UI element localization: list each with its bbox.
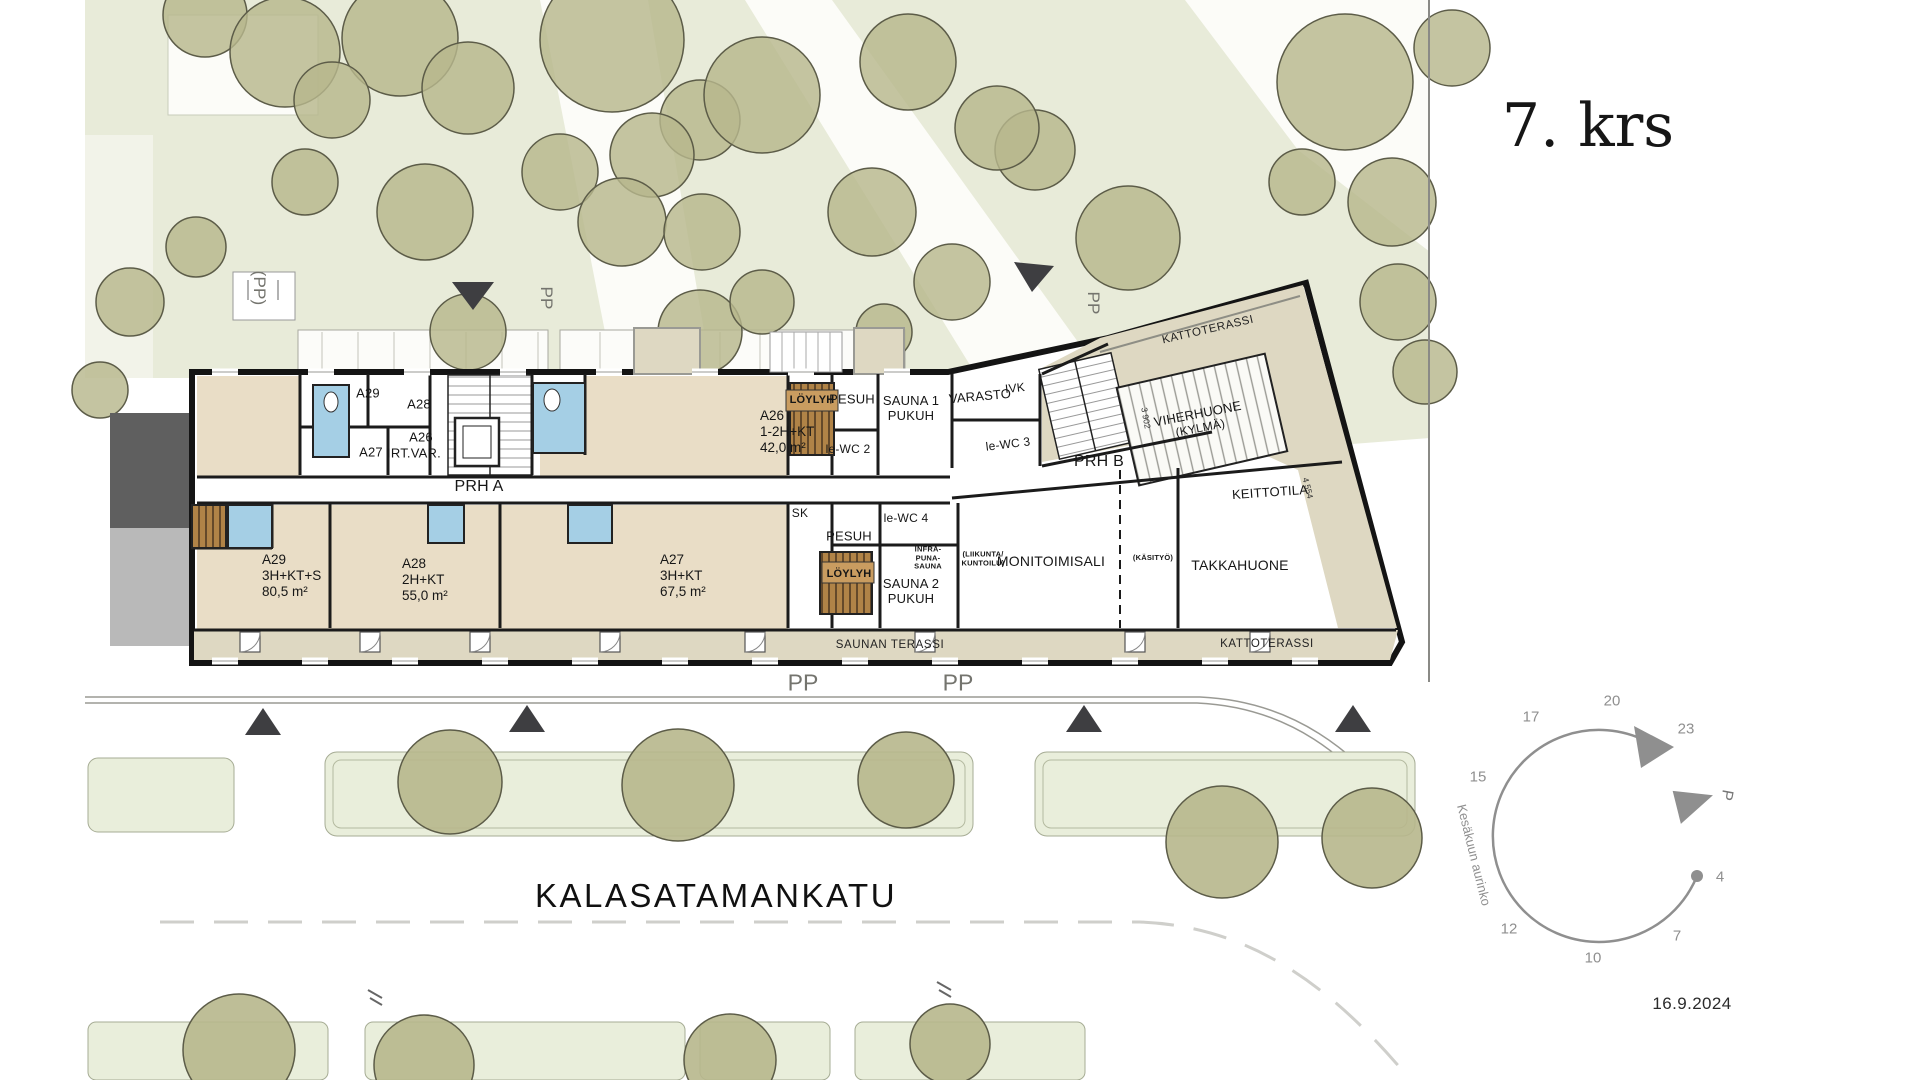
floor-plan-page: 7. krs 16.9.2024 KALASATAMANKATU PP PP (… [0,0,1920,1080]
sun-path-diagram [1493,726,1718,942]
corridor-label-prh-a: PRH A [454,478,503,496]
storage-label-irt-var: IRT.VAR. [387,446,441,461]
floor-title: 7. krs [1502,91,1674,161]
apartment-label-a26: A26 1-2H+KT 42,0 m² [760,408,814,456]
room-label-sauna-1: SAUNA 1PUKUH [883,393,939,423]
room-label-ivk: IVK [1004,380,1025,396]
terrace-label-saunan-terassi: SAUNAN TERASSI [836,639,945,651]
north-arrow-icon [1673,782,1718,824]
storage-label-a26: A26 [409,430,433,445]
room-label-infrapunasauna: INFRA-PUNA-SAUNA [914,545,942,571]
apartment-label-a27: A27 3H+KT 67,5 m² [660,552,706,600]
sun-hour-17: 17 [1523,709,1540,726]
terrace-label-kattoterassi-bottom: KATTOTERASSI [1220,638,1314,650]
sun-hour-7: 7 [1673,928,1681,945]
room-label-loylyh-2: LÖYLYH [827,568,872,580]
sun-hour-20: 20 [1604,693,1621,710]
panel-divider [1428,0,1430,682]
room-label-sk: SK [792,506,808,520]
pp-marker-right: PP [943,670,974,697]
pp-marker-left: PP [788,670,819,697]
room-label-takkahuone: TAKKAHUONE [1191,557,1288,573]
room-label-pesuh-2: PESUH [826,529,872,544]
pp-parking-label-3: PP [1083,291,1103,314]
apartment-label-a29: A29 3H+KT+S 80,5 m² [262,552,321,600]
room-label-le-wc-2: le-WC 2 [826,442,871,456]
room-label-monitoimisali: MONITOIMISALI [997,553,1105,569]
sun-hour-15: 15 [1470,769,1487,786]
room-label-loylyh-1: LÖYLYH [790,394,835,406]
room-label-kasityo: (KÄSITYÖ) [1133,554,1173,563]
apartment-label-a28: A28 2H+KT 55,0 m² [402,556,448,604]
sun-hour-23: 23 [1678,721,1695,738]
sun-hour-4: 4 [1716,869,1724,886]
room-label-pesuh-1: PESUH [829,392,875,407]
sun-hour-10: 10 [1585,950,1602,967]
room-label-sauna-2: SAUNA 2PUKUH [883,576,939,606]
storage-label-a28: A28 [407,397,431,412]
storage-label-a29: A29 [356,386,380,401]
street-name: KALASATAMANKATU [535,877,897,915]
corridor-label-prh-b: PRH B [1074,453,1124,471]
plan-date: 16.9.2024 [1652,994,1731,1014]
site-plan-graphic [0,0,1920,1080]
room-label-le-wc-4: le-WC 4 [884,511,929,525]
pp-parking-label-2: PP [536,286,556,309]
pp-parking-label-1: (PP) [249,271,269,306]
storage-label-a27: A27 [359,445,383,460]
sun-hour-12: 12 [1501,921,1518,938]
